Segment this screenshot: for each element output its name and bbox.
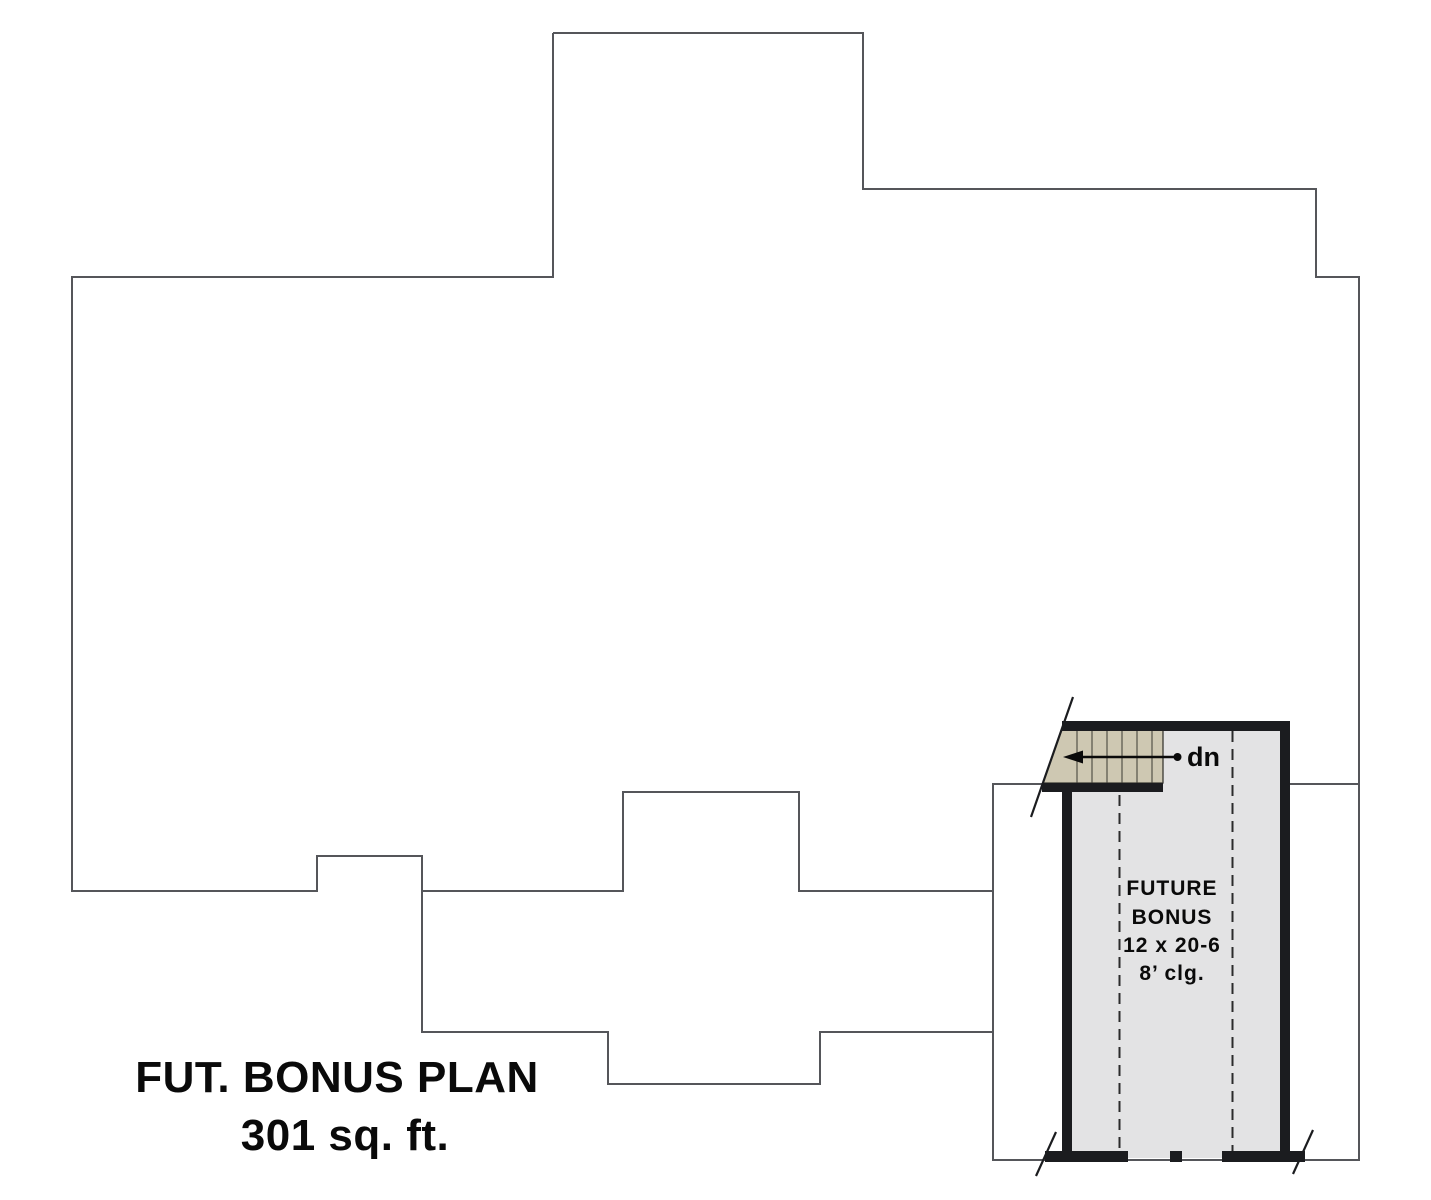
- arrow-origin-dot: [1174, 753, 1182, 761]
- roof-outline-left-lower: [72, 33, 993, 1084]
- stair-direction-label: dn: [1187, 742, 1220, 772]
- room-name-line2: BONUS: [1132, 906, 1213, 929]
- room-name-line1: FUTURE: [1126, 877, 1217, 900]
- floor-plan-drawing: dn FUTURE BONUS 12 x 20-6 8’ clg. FUT. B…: [0, 0, 1431, 1200]
- wall-bottom-right-segment: [1222, 1151, 1305, 1162]
- roof-outline-mid-eave: [422, 792, 993, 891]
- wall-top: [1062, 721, 1290, 731]
- roof-outline-upper: [553, 33, 1359, 784]
- wall-right: [1280, 721, 1290, 1162]
- wall-bottom-left-segment: [1045, 1151, 1128, 1162]
- room-ceiling-height: 8’ clg.: [1139, 962, 1204, 985]
- plan-title-line2: 301 sq. ft.: [241, 1111, 449, 1160]
- wall-left: [1062, 792, 1072, 1162]
- bottom-wall-post: [1170, 1151, 1182, 1162]
- wall-stair-landing: [1042, 783, 1163, 792]
- plan-title: FUT. BONUS PLAN 301 sq. ft.: [135, 1053, 539, 1160]
- floor-plan-canvas: dn FUTURE BONUS 12 x 20-6 8’ clg. FUT. B…: [0, 0, 1431, 1200]
- room-dimensions: 12 x 20-6: [1123, 934, 1221, 957]
- plan-title-line1: FUT. BONUS PLAN: [135, 1053, 539, 1102]
